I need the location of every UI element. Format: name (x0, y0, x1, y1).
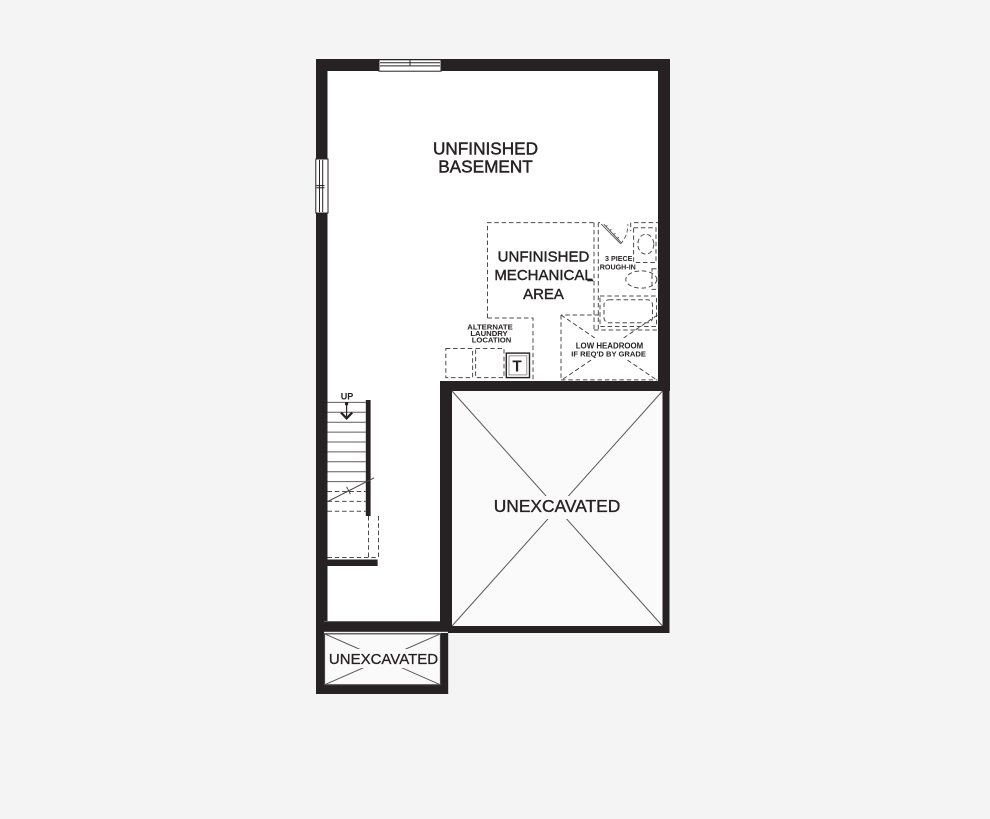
svg-text:MECHANICAL: MECHANICAL (494, 267, 592, 284)
svg-text:T: T (512, 359, 522, 376)
svg-text:AREA: AREA (523, 286, 564, 303)
svg-text:IF REQ'D BY GRADE: IF REQ'D BY GRADE (571, 349, 646, 358)
svg-text:UNFINISHED: UNFINISHED (433, 139, 538, 159)
svg-text:UNEXCAVATED: UNEXCAVATED (329, 651, 438, 668)
svg-text:LOCATION: LOCATION (472, 336, 512, 345)
svg-text:BASEMENT: BASEMENT (438, 157, 533, 177)
svg-text:UP: UP (341, 391, 354, 401)
svg-text:ROUGH-IN: ROUGH-IN (600, 263, 636, 271)
svg-text:3 PIECE: 3 PIECE (605, 255, 633, 263)
svg-text:UNFINISHED: UNFINISHED (498, 249, 590, 266)
svg-text:UNEXCAVATED: UNEXCAVATED (494, 496, 621, 516)
